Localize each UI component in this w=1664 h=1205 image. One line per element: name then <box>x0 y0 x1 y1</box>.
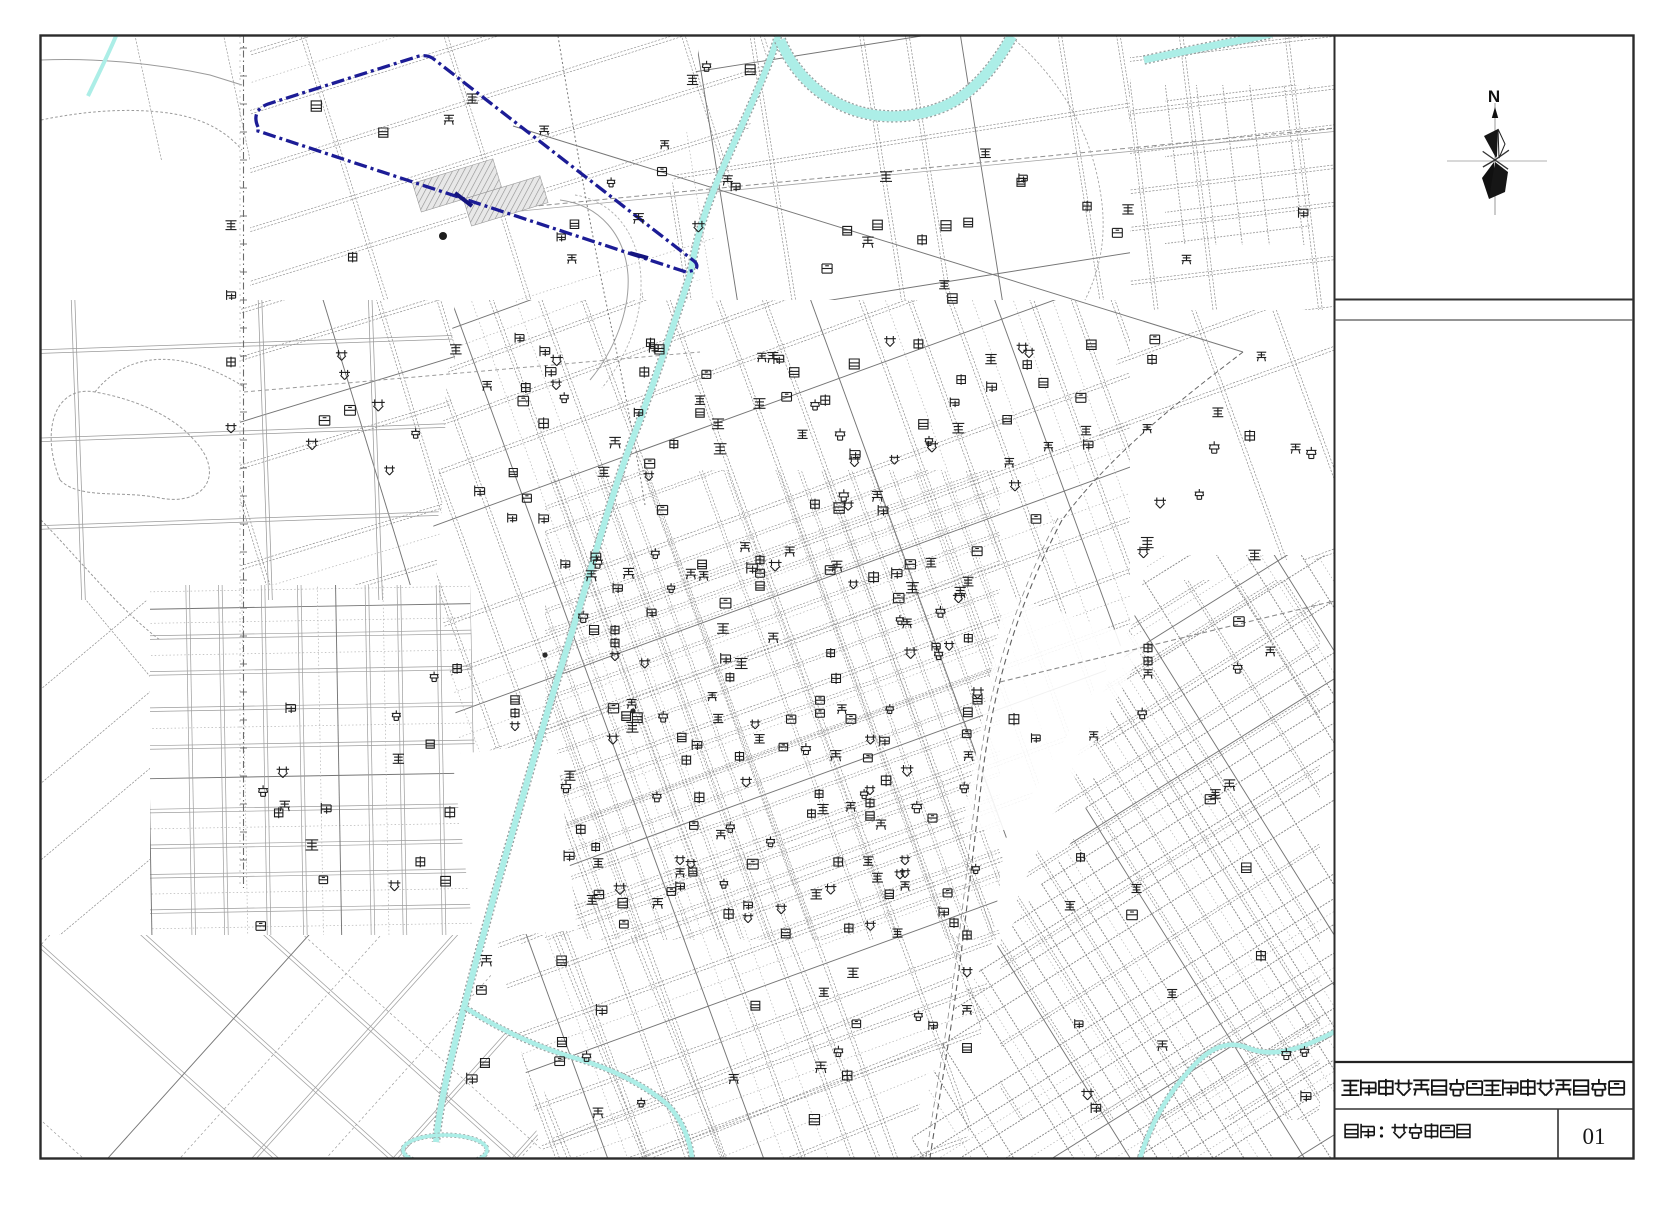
svg-text:01: 01 <box>1583 1124 1606 1149</box>
svg-text:N: N <box>1488 87 1500 106</box>
